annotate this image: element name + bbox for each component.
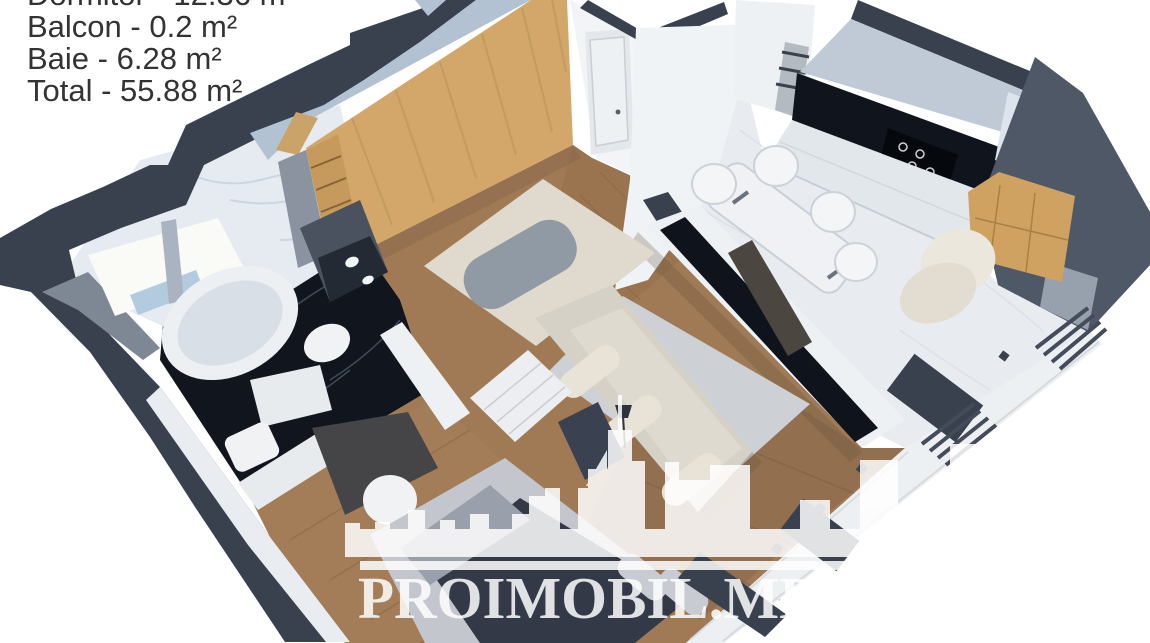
svg-text:Total - 55.88 m²: Total - 55.88 m² (27, 73, 242, 108)
svg-text:PROIMOBIL.MD: PROIMOBIL.MD (358, 565, 822, 631)
svg-text:Baie - 6.28 m²: Baie - 6.28 m² (27, 41, 222, 76)
svg-text:Balcon - 0.2 m²: Balcon - 0.2 m² (27, 9, 237, 44)
